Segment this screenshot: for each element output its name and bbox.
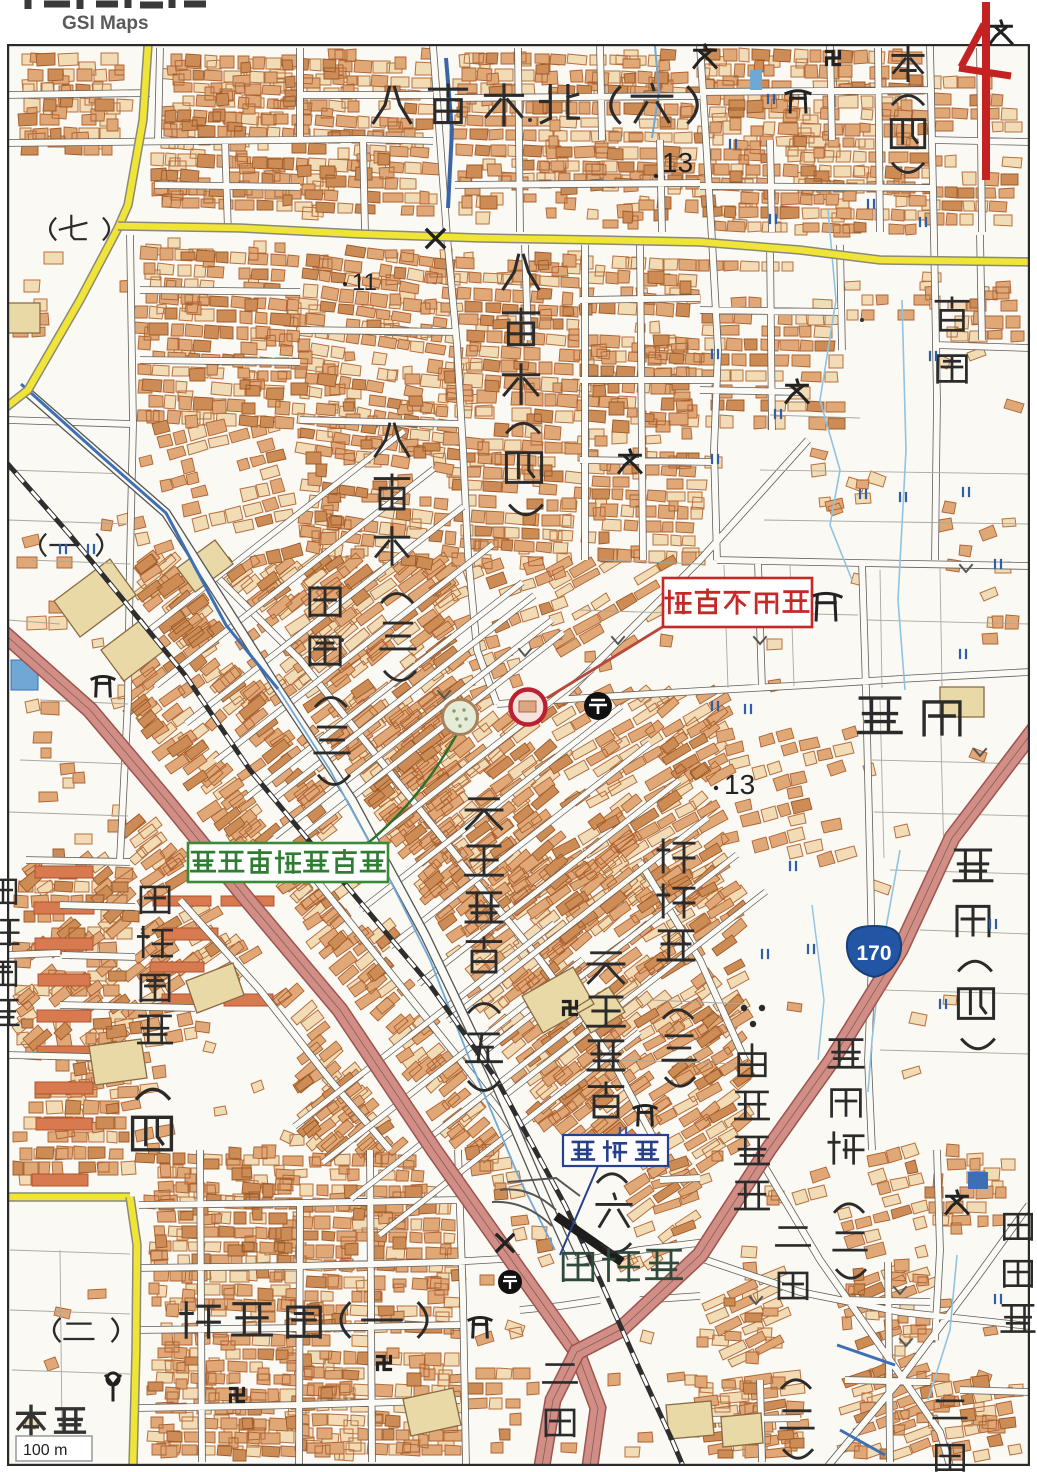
svg-text:13: 13 — [724, 769, 755, 800]
svg-text:170: 170 — [856, 942, 891, 965]
svg-text:GSI Maps: GSI Maps — [62, 13, 149, 34]
svg-text:13: 13 — [662, 147, 693, 178]
svg-text:11: 11 — [352, 269, 377, 296]
svg-text:100 m: 100 m — [23, 1442, 67, 1459]
